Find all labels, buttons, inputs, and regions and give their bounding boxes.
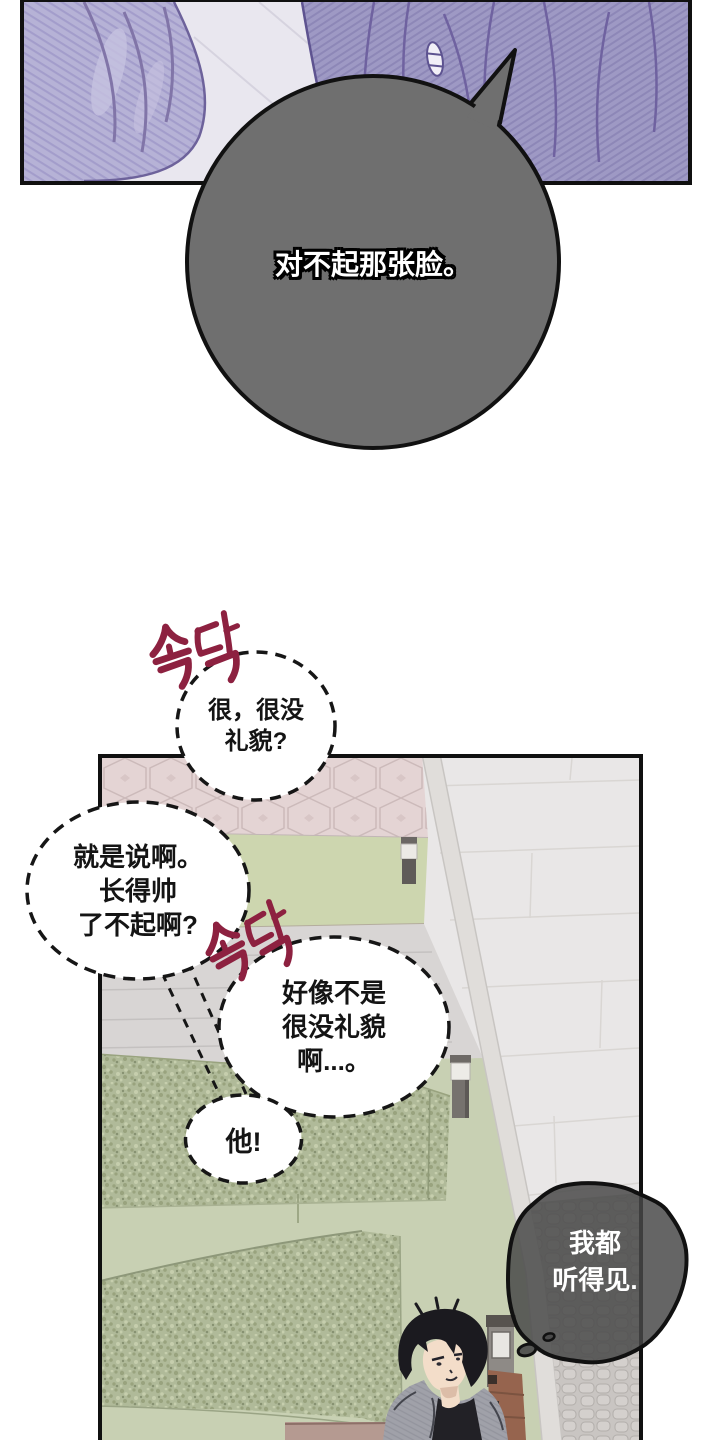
whisper-bubble-4-text: 他!	[182, 1091, 305, 1187]
lamp-post-1	[401, 837, 417, 884]
lamp-post-2	[450, 1055, 471, 1118]
comic-page: 对不起那张脸。 很，很没 礼貌?	[0, 0, 720, 1440]
speech-bubble-main-text: 对不起那张脸。	[213, 243, 533, 283]
speech-line: 对不起那张脸。	[275, 243, 471, 283]
thought-bubble-dot-1	[517, 1342, 537, 1357]
thought-bubble-text: 我都 听得见.	[515, 1225, 675, 1299]
